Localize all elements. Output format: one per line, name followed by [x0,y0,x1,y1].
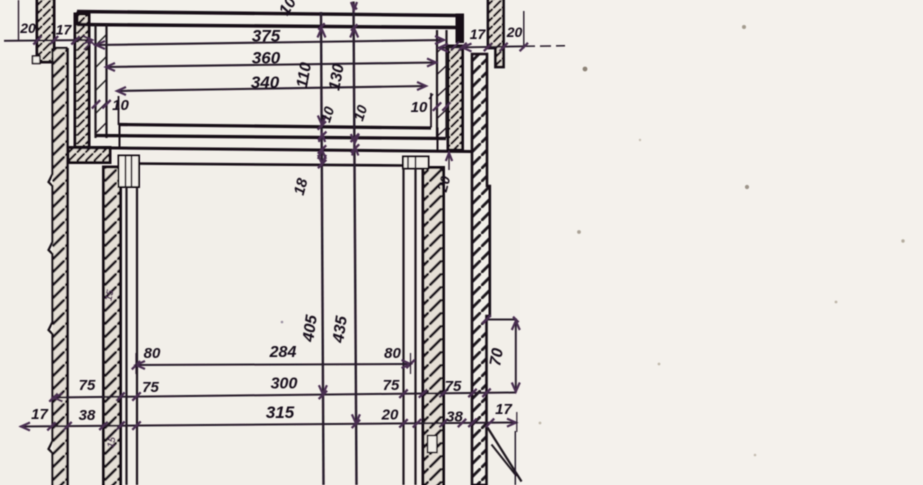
svg-text:75: 75 [445,378,462,395]
svg-text:38: 38 [79,407,96,424]
svg-text:10: 10 [112,97,129,114]
svg-text:20: 20 [19,20,36,36]
svg-text:70: 70 [487,347,507,368]
svg-text:17: 17 [470,26,487,42]
svg-text:17: 17 [31,406,48,423]
svg-text:20: 20 [381,407,399,424]
svg-text:75: 75 [79,377,96,394]
svg-text:315: 315 [266,403,295,422]
svg-text:300: 300 [271,376,298,393]
svg-text:10: 10 [411,99,428,116]
svg-text:80: 80 [384,345,401,362]
svg-text:340: 340 [251,73,280,92]
svg-text:17: 17 [56,22,73,38]
svg-text:75: 75 [383,377,400,394]
svg-text:360: 360 [252,49,281,68]
svg-text:375: 375 [252,27,281,46]
svg-text:38: 38 [446,409,463,426]
svg-text:17: 17 [495,401,512,418]
svg-text:75: 75 [142,379,159,396]
svg-text:284: 284 [269,344,297,361]
svg-text:80: 80 [144,345,161,362]
svg-text:20: 20 [506,24,523,40]
